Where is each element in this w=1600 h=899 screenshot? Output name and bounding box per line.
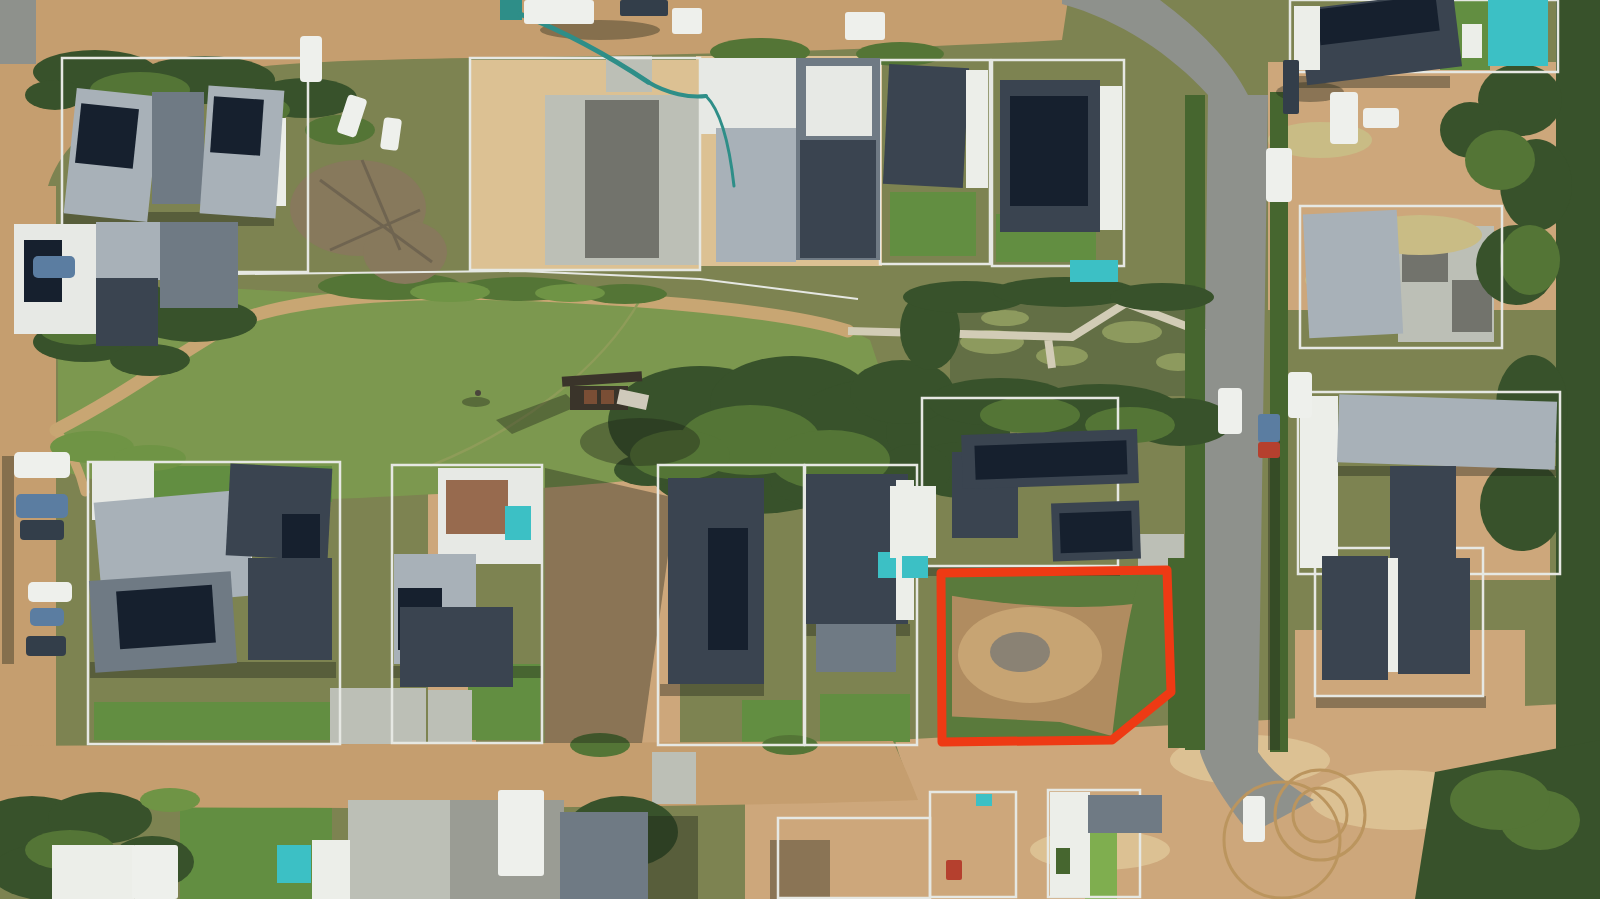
site-machine (946, 860, 962, 880)
concrete-truck (845, 12, 885, 40)
roof (1303, 210, 1403, 339)
roof (1088, 795, 1162, 833)
solar-panels (974, 440, 1127, 479)
wall (890, 486, 936, 558)
car (1363, 108, 1399, 128)
car (28, 582, 72, 602)
dumpster (1056, 848, 1070, 874)
house-left-second-row (89, 462, 332, 673)
roof (1390, 466, 1456, 564)
car (30, 608, 64, 626)
solar-panels (1010, 96, 1088, 206)
patio (312, 840, 350, 899)
truck-box (1258, 414, 1280, 442)
truck (524, 0, 594, 24)
car (1243, 796, 1265, 842)
pool-deck (1462, 24, 1482, 58)
wall (1300, 396, 1338, 568)
trailer (620, 0, 668, 16)
roof (1337, 394, 1557, 470)
truck (132, 845, 178, 899)
house-right-construction (1303, 210, 1403, 339)
aerial-photo-viewport (0, 0, 1600, 899)
van (300, 36, 322, 82)
house-right-lower (1322, 556, 1470, 680)
swimming-pool (1488, 0, 1548, 66)
swimming-pool (505, 506, 531, 540)
pool-cover (976, 794, 992, 806)
play-panel (601, 390, 614, 404)
pickup (20, 520, 64, 540)
wall (1100, 86, 1122, 230)
roof (800, 140, 876, 258)
wall (1050, 792, 1090, 897)
roof (152, 92, 204, 204)
bakkie (1288, 372, 1312, 418)
brick-patio (446, 480, 508, 534)
swimming-pool (277, 845, 311, 883)
roof (883, 64, 969, 188)
roof (160, 222, 238, 308)
roof (1398, 558, 1470, 674)
roof (248, 558, 332, 660)
van (1218, 388, 1242, 434)
car (14, 452, 70, 478)
swimming-pool (1070, 260, 1118, 282)
box-truck (498, 790, 544, 876)
trailer (1283, 60, 1299, 114)
aerial-photo (0, 0, 1600, 899)
wall (52, 845, 134, 899)
car (16, 494, 68, 518)
roof (96, 222, 160, 280)
plunge-pool (902, 556, 928, 578)
house-midrow-solar (668, 478, 764, 684)
car (33, 256, 75, 278)
pump-truck (500, 0, 522, 20)
van (1266, 148, 1292, 202)
roof (806, 66, 872, 136)
solar-panels (708, 528, 748, 650)
person (475, 390, 481, 396)
solar-panels (75, 103, 139, 169)
roof (816, 624, 896, 672)
house-top-dark (883, 64, 988, 188)
roof (1322, 556, 1388, 680)
solar-panels (1059, 511, 1132, 553)
van (1330, 92, 1358, 144)
roof (400, 607, 513, 687)
wall (1388, 558, 1398, 672)
plot-gray-patch (990, 632, 1050, 672)
truck (672, 8, 702, 34)
solar-panels (210, 96, 264, 155)
truck-cab (1258, 442, 1280, 458)
roof (96, 278, 158, 346)
roof (700, 58, 796, 134)
solar-panels (116, 585, 216, 650)
car (26, 636, 66, 656)
wall (966, 70, 988, 188)
house-top-white (700, 58, 880, 262)
roof (560, 812, 648, 899)
play-panel (584, 390, 597, 404)
